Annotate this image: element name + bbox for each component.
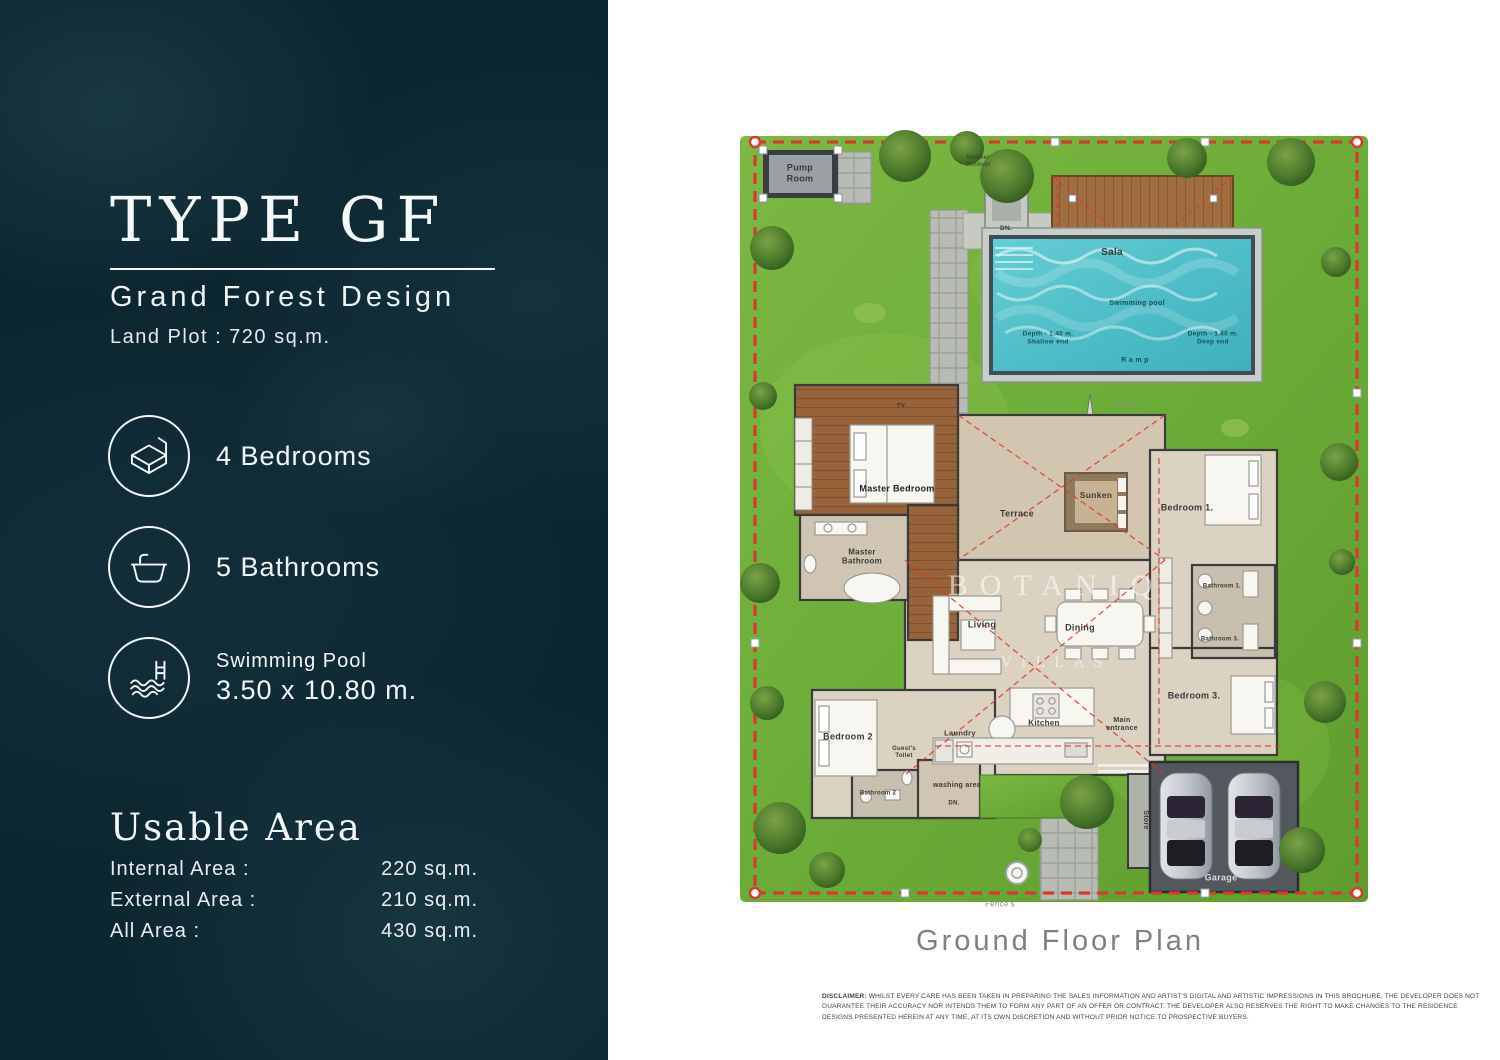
room-label-washing-area: washing area bbox=[933, 782, 981, 790]
feature-pool-label: Swimming Pool 3.50 x 10.80 m. bbox=[216, 650, 417, 706]
left-info-panel: TYPE GF Grand Forest Design Land Plot : … bbox=[0, 0, 608, 1060]
pool-label-line2: 3.50 x 10.80 m. bbox=[216, 675, 417, 705]
room-label-bedroom-2: Bedroom 2 bbox=[823, 732, 873, 743]
room-label-guests-toilet: Guest's Toilet bbox=[892, 746, 916, 760]
title-divider bbox=[110, 268, 495, 270]
feature-bedrooms-label: 4 Bedrooms bbox=[216, 441, 372, 472]
disclaimer-body: WHILST EVERY CARE HAS BEEN TAKEN IN PREP… bbox=[822, 993, 1479, 1021]
area-row-all: All Area : 430 sq.m. bbox=[110, 920, 478, 943]
room-label-terrace: Terrace bbox=[1000, 509, 1034, 520]
label-fences: Fence's bbox=[985, 899, 1015, 908]
area-value: 220 sq.m. bbox=[381, 858, 478, 881]
label-dn-pool: DN. bbox=[1000, 225, 1012, 233]
room-label-bedroom-1: Bedroom 1. bbox=[1161, 503, 1214, 514]
label-tv: TV bbox=[897, 403, 905, 410]
room-label-bedroom-3: Bedroom 3. bbox=[1168, 691, 1221, 702]
room-label-main-entrance: Main entrance bbox=[1106, 717, 1138, 734]
disclaimer-heading: DISCLAIMER: bbox=[822, 993, 867, 1000]
room-label-bathroom-2: Bathroom 2 bbox=[860, 790, 896, 797]
label-depth-deep: Depth - 1.60 m. Deep end bbox=[1188, 330, 1239, 345]
disclaimer-text: DISCLAIMER: WHILST EVERY CARE HAS BEEN T… bbox=[822, 992, 1482, 1023]
room-label-shower-outdoor: Shower Outdoor bbox=[965, 155, 991, 169]
room-label-bathroom-1: Bathroom 1. bbox=[1203, 583, 1241, 590]
sunken-lounge bbox=[1065, 473, 1127, 531]
room-label-laundry: Laundry bbox=[944, 730, 976, 739]
feature-bedrooms: 4 Bedrooms bbox=[108, 415, 372, 497]
room-label-living: Living bbox=[968, 620, 996, 631]
area-row-internal: Internal Area : 220 sq.m. bbox=[110, 858, 478, 881]
usable-area-table: Internal Area : 220 sq.m. External Area … bbox=[110, 858, 478, 951]
room-label-sunken: Sunken bbox=[1080, 490, 1113, 500]
room-label-sala: Sala bbox=[1101, 247, 1123, 259]
bathtub-icon bbox=[108, 526, 190, 608]
room-label-pump-room: Pump Room bbox=[787, 162, 814, 183]
area-row-external: External Area : 210 sq.m. bbox=[110, 889, 478, 912]
label-swimming-pool: Swimming pool bbox=[1109, 300, 1165, 308]
label-depth-shallow: Depth - 1.40 m. Shallow end bbox=[1023, 330, 1074, 345]
pool-icon bbox=[108, 637, 190, 719]
room-label-store: Store bbox=[1141, 810, 1149, 829]
car-2 bbox=[1228, 773, 1280, 879]
feature-pool: Swimming Pool 3.50 x 10.80 m. bbox=[108, 637, 417, 719]
floor-plan-image: BOTANIQ VILLAS Pump Room Shower Outdoor … bbox=[735, 128, 1385, 908]
feature-bathrooms-label: 5 Bathrooms bbox=[216, 552, 380, 583]
label-ramp: R a m p bbox=[1121, 357, 1148, 365]
area-value: 210 sq.m. bbox=[381, 889, 478, 912]
car-1 bbox=[1160, 773, 1212, 879]
land-plot-text: Land Plot : 720 sq.m. bbox=[110, 326, 331, 349]
label-garden: Garden bbox=[1112, 401, 1135, 409]
design-subtitle: Grand Forest Design bbox=[110, 281, 455, 314]
area-label: External Area : bbox=[110, 889, 256, 912]
room-label-garage: Garage bbox=[1205, 873, 1238, 884]
label-dn-washing: DN. bbox=[948, 800, 959, 807]
floor-plan-graphic bbox=[735, 128, 1385, 908]
area-label: All Area : bbox=[110, 920, 200, 943]
usable-area-title: Usable Area bbox=[110, 806, 362, 849]
feature-bathrooms: 5 Bathrooms bbox=[108, 526, 380, 608]
area-label: Internal Area : bbox=[110, 858, 250, 881]
room-label-master-bedroom: Master Bedroom bbox=[859, 484, 934, 495]
bed-icon bbox=[108, 415, 190, 497]
room-label-dining: Dining bbox=[1065, 623, 1095, 634]
pool-label-line1: Swimming Pool bbox=[216, 650, 417, 673]
page-title: TYPE GF bbox=[110, 183, 448, 256]
room-label-bathroom-3: Bathroom 3. bbox=[1201, 636, 1239, 643]
room-label-kitchen: Kitchen bbox=[1028, 718, 1059, 727]
room-label-master-bathroom: Master Bathroom bbox=[842, 548, 882, 567]
brochure-page: TYPE GF Grand Forest Design Land Plot : … bbox=[0, 0, 1500, 1060]
area-value: 430 sq.m. bbox=[381, 920, 478, 943]
plan-caption: Ground Floor Plan bbox=[735, 925, 1385, 958]
